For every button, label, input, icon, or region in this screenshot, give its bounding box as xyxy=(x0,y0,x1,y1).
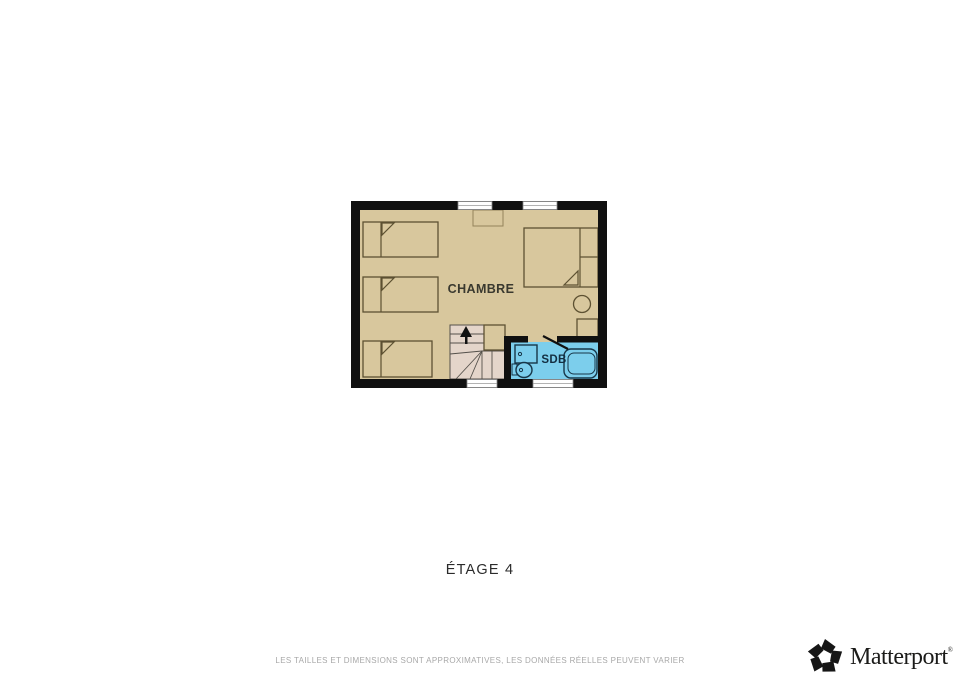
window-icon xyxy=(533,380,573,388)
single-bed-2-icon xyxy=(363,277,438,312)
single-bed-1-icon xyxy=(363,222,438,257)
matterport-logo: Matterport® xyxy=(806,637,953,677)
matterport-wordmark: Matterport® xyxy=(850,644,953,671)
window-icon xyxy=(467,380,497,388)
nightstand-icon xyxy=(577,319,598,338)
trademark-symbol: ® xyxy=(948,646,953,654)
bedroom-label: CHAMBRE xyxy=(436,282,526,296)
stool-icon xyxy=(574,296,591,313)
bathroom-label: SDB xyxy=(532,354,576,366)
floor-level-label: ÉTAGE 4 xyxy=(0,562,960,578)
matterport-pinwheel-icon xyxy=(806,638,844,676)
single-bed-3-icon xyxy=(363,341,432,377)
double-bed-icon xyxy=(524,228,598,287)
window-icon xyxy=(523,202,557,210)
window-icon xyxy=(458,202,492,210)
closet-icon xyxy=(484,325,505,350)
page: { "floorplan": { "level_label": "ÉTAGE 4… xyxy=(0,0,960,679)
